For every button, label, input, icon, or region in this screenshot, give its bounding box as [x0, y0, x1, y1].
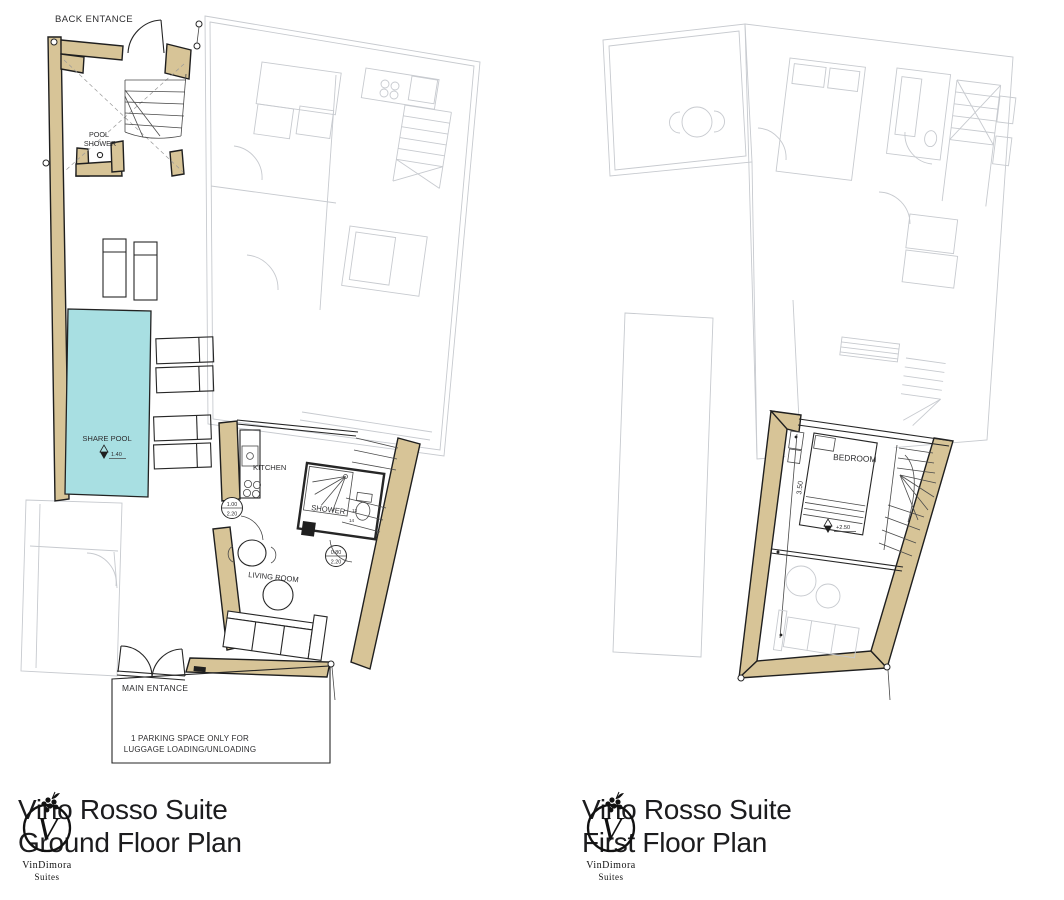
- logo-initial: V: [601, 811, 626, 848]
- vindimora-logo-mark: V: [588, 792, 634, 851]
- logo-brand: VinDimora: [22, 860, 72, 871]
- pool-shower-label-1: POOL: [89, 130, 109, 139]
- stair-step-14: 14: [349, 518, 355, 523]
- door-b-width: 0.80: [331, 550, 342, 556]
- vindimora-logo: V VinDimora Suites: [8, 790, 86, 886]
- kitchen-label: KITCHEN: [253, 463, 286, 472]
- back-entrance-label: BACK ENTANCE: [55, 14, 133, 25]
- floor-level-value: +2.50: [836, 525, 850, 531]
- share-pool: [65, 309, 151, 497]
- parking-label-2: LUGGAGE LOADING/UNLOADING: [124, 745, 257, 754]
- shower-label: SHOWER: [311, 503, 347, 516]
- stair-step-13: 13: [352, 508, 358, 513]
- vindimora-logo: V VinDimora Suites: [572, 790, 650, 886]
- door-a-height: 2.20: [227, 512, 238, 518]
- courtyard-stairs: [125, 74, 186, 138]
- first-floor-caption: V VinDimora Suites Vino Rosso Suite Firs…: [572, 790, 791, 859]
- pool-shower-label-2: SHOWER: [84, 139, 116, 148]
- pool-depth-value: 1.40: [111, 452, 122, 458]
- floor-plan-sheet: 1.00 2.20 0.80 2.20: [0, 0, 1064, 900]
- door-a-width: 1.00: [227, 502, 238, 508]
- door-dimension-b: 0.80 2.20: [326, 540, 353, 567]
- main-entrance-label: MAIN ENTANCE: [122, 683, 188, 693]
- grapes-icon: [605, 792, 624, 812]
- plans-canvas: 1.00 2.20 0.80 2.20: [0, 0, 1064, 780]
- door-b-height: 2.20: [331, 560, 342, 566]
- logo-initial: V: [37, 811, 62, 848]
- shower-head-symbol: [97, 152, 102, 157]
- logo-brand: VinDimora: [586, 860, 636, 871]
- parking-label-1: 1 PARKING SPACE ONLY FOR: [131, 734, 249, 743]
- kitchen-fixtures: [237, 420, 358, 498]
- logo-sub: Suites: [598, 872, 623, 882]
- ground-floor-caption: V VinDimora Suites Vino Rosso Suite Grou…: [8, 790, 242, 859]
- grapes-icon: [41, 792, 60, 812]
- living-room-label: LIVING ROOM: [248, 570, 299, 584]
- vindimora-logo-mark: V: [24, 792, 70, 851]
- back-entrance-door: [128, 20, 164, 53]
- share-pool-label: SHARE POOL: [82, 434, 131, 443]
- logo-sub: Suites: [34, 872, 59, 882]
